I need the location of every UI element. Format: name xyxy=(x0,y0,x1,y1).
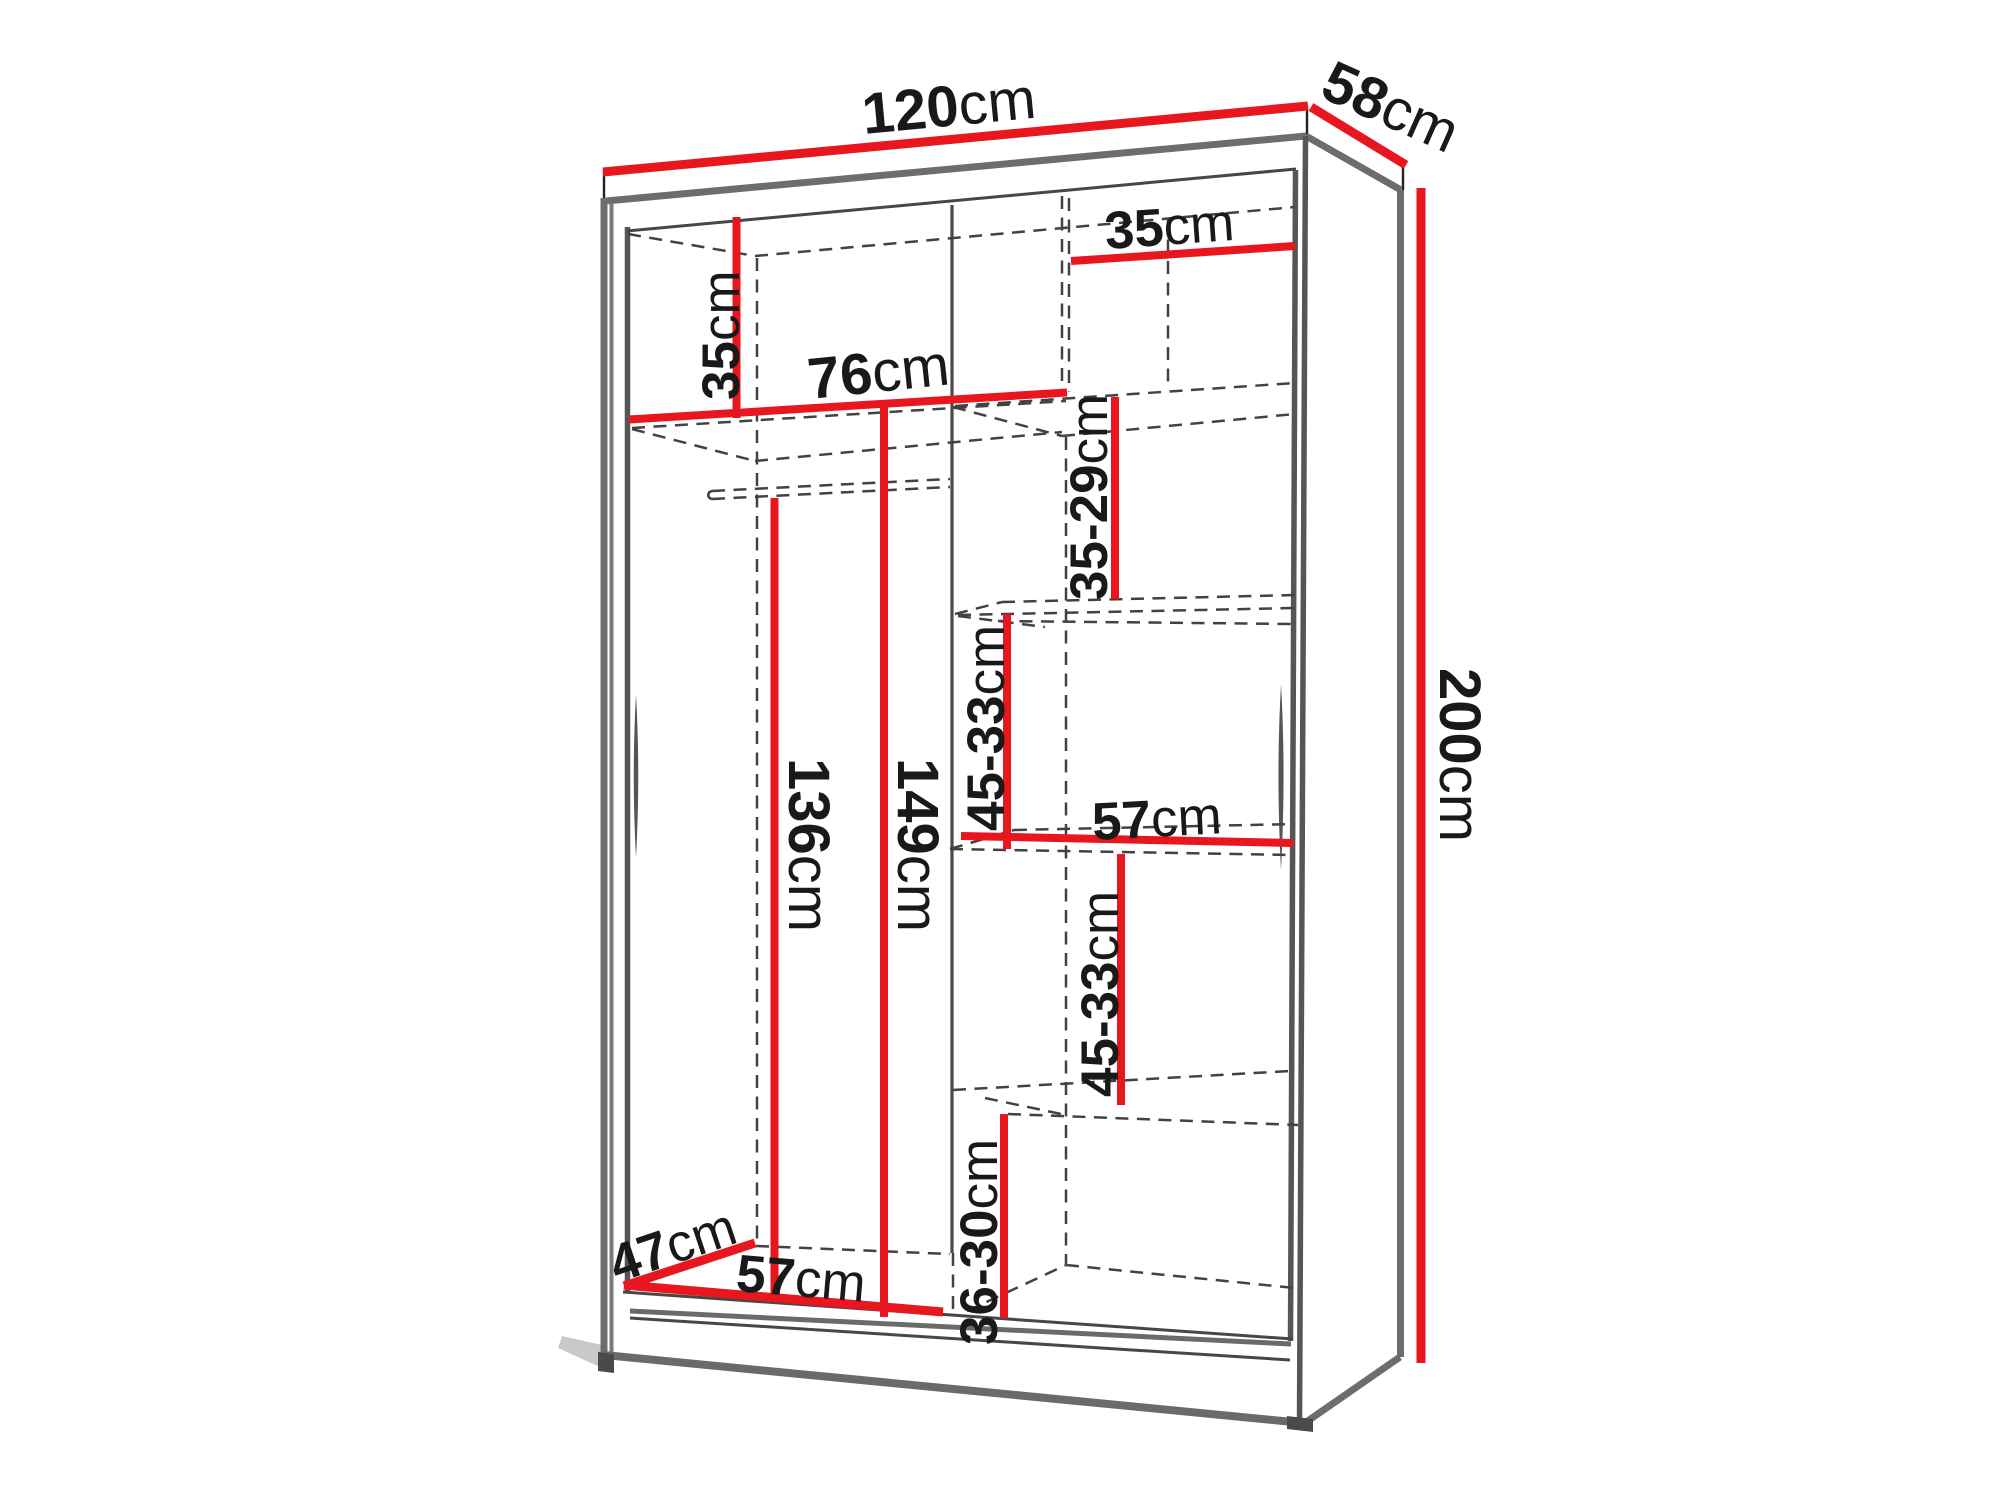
svg-text:149cm: 149cm xyxy=(885,758,950,932)
svg-text:57cm: 57cm xyxy=(734,1244,868,1314)
svg-text:200cm: 200cm xyxy=(1427,668,1492,842)
svg-text:136cm: 136cm xyxy=(776,758,841,932)
svg-text:57cm: 57cm xyxy=(1091,786,1224,852)
svg-text:36-30cm: 36-30cm xyxy=(950,1139,1009,1345)
svg-text:45-33cm: 45-33cm xyxy=(957,625,1016,831)
svg-text:58cm: 58cm xyxy=(1313,48,1469,165)
svg-text:35cm: 35cm xyxy=(692,270,751,400)
svg-text:35-29cm: 35-29cm xyxy=(1060,394,1119,600)
svg-text:35cm: 35cm xyxy=(1103,193,1236,261)
svg-text:45-33cm: 45-33cm xyxy=(1071,891,1130,1097)
svg-text:47cm: 47cm xyxy=(602,1197,744,1294)
